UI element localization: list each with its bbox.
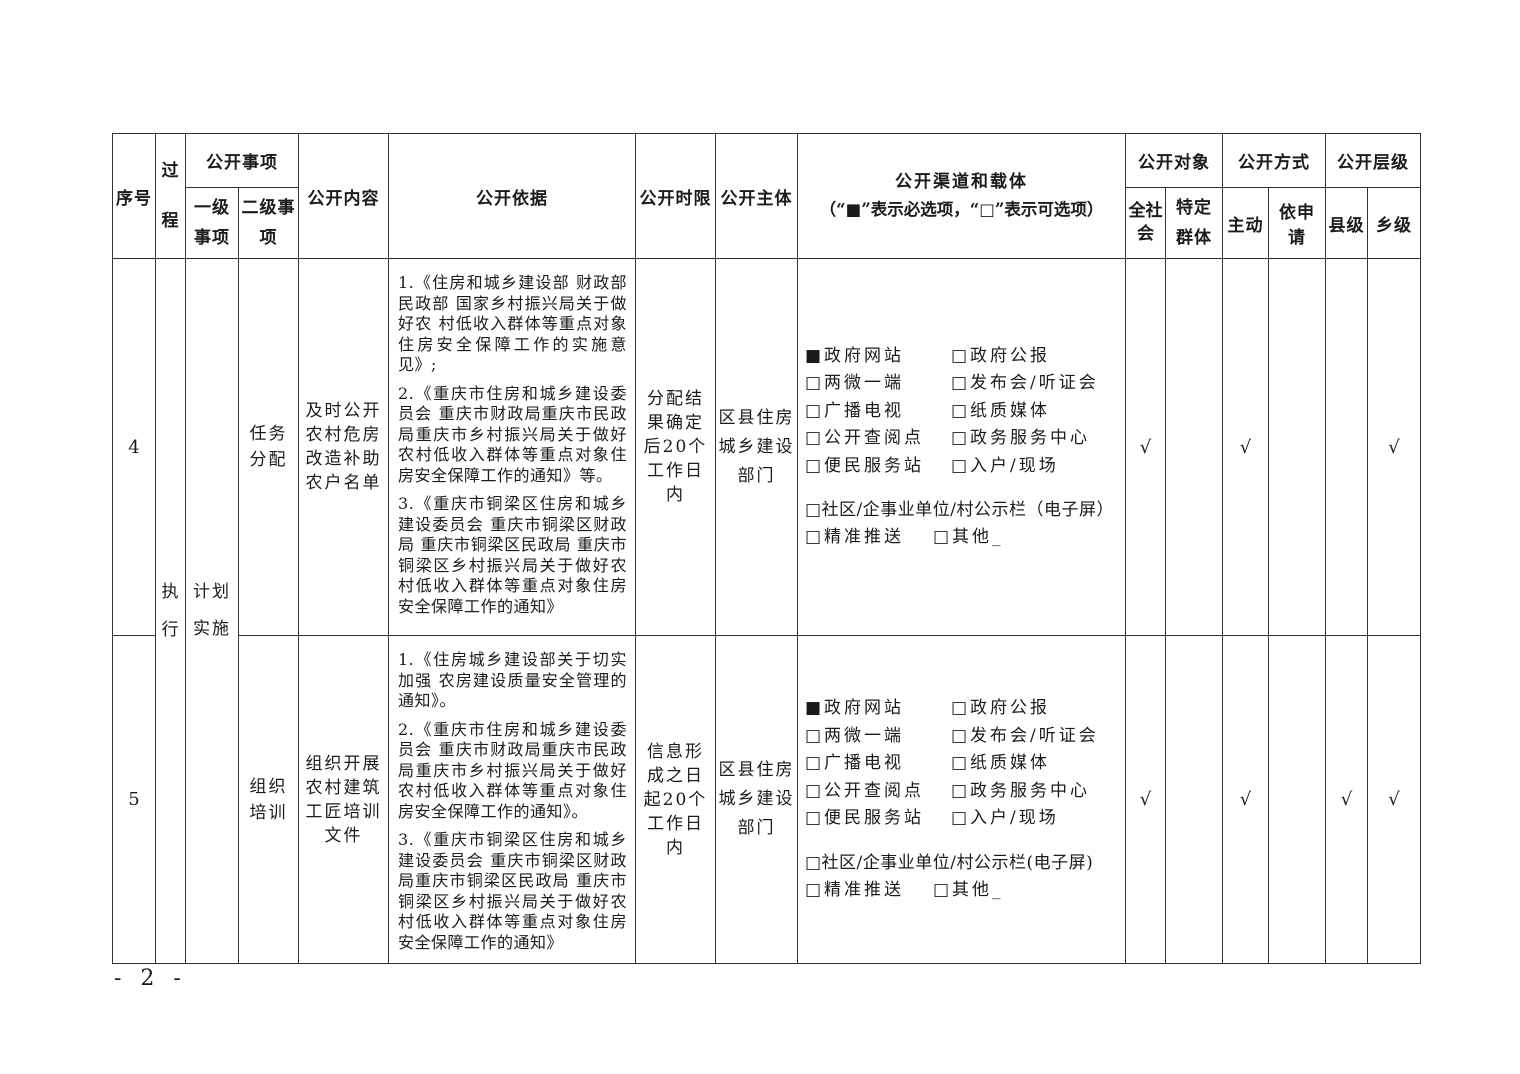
- checkbox-public-reading-point: □公开查阅点: [805, 425, 951, 453]
- row4-channels: ■政府网站 □两微一端 □广播电视 □公开查阅点 □便民服务站 □政府公报 □发…: [798, 259, 1126, 636]
- header-channels-title: 公开渠道和载体: [800, 169, 1123, 196]
- row4-time-limit: 分配结果确定后20个工作日内: [636, 259, 716, 636]
- row5-basis-item-1: 1.《住房城乡建设部关于切实加强 农房建设质量安全管理的通知》。: [398, 650, 627, 712]
- checkbox-two-micro-one-app: □两微一端: [805, 370, 951, 398]
- checkbox-door-to-door: □入户/现场: [951, 805, 1123, 833]
- checkbox-door-to-door: □入户/现场: [951, 453, 1123, 481]
- checkbox-public-reading-point: □公开查阅点: [805, 778, 951, 806]
- checkbox-gov-gazette: □政府公报: [951, 695, 1123, 723]
- document-page: { "footer": { "page_number": "- 2 -" }, …: [0, 0, 1520, 1074]
- row4-level2-item: 任务分配: [239, 259, 299, 636]
- header-subject: 公开主体: [716, 134, 798, 259]
- header-basis: 公开依据: [389, 134, 636, 259]
- row5-basis: 1.《住房城乡建设部关于切实加强 农房建设质量安全管理的通知》。 2.《重庆市住…: [389, 636, 636, 964]
- header-method: 公开方式: [1223, 134, 1326, 188]
- row5-channels: ■政府网站 □两微一端 □广播电视 □公开查阅点 □便民服务站 □政府公报 □发…: [798, 636, 1126, 964]
- header-process: 过程: [156, 134, 186, 259]
- header-level1-item: 一级事项: [186, 188, 239, 259]
- row4-mark-on-request: [1269, 259, 1326, 636]
- row4-mark-whole-society: √: [1126, 259, 1166, 636]
- header-proactive: 主动: [1223, 188, 1269, 259]
- row4-subject: 区县住房城乡建设部门: [716, 259, 798, 636]
- checkbox-service-center: □政务服务中心: [951, 425, 1123, 453]
- checkbox-precise-push: □精准推送: [805, 877, 933, 904]
- checkbox-convenience-station: □便民服务站: [805, 453, 951, 481]
- row4-basis-item-1: 1.《住房和城乡建设部 财政部 民政部 国家乡村振兴局关于做好农 村低收入群体等…: [398, 273, 627, 376]
- header-level2-item: 二级事项: [239, 188, 299, 259]
- header-county-level: 县级: [1326, 188, 1368, 259]
- row4-basis-item-3: 3.《重庆市铜梁区住房和城乡建设委员会 重庆市铜梁区财政局 重庆市铜梁区民政局 …: [398, 494, 627, 617]
- checkbox-service-center: □政务服务中心: [951, 778, 1123, 806]
- header-on-request: 依申请: [1269, 188, 1326, 259]
- checkbox-paper-media: □纸质媒体: [951, 398, 1123, 426]
- row4-content: 及时公开农村危房改造补助农户名单: [299, 259, 389, 636]
- checkbox-convenience-station: □便民服务站: [805, 805, 951, 833]
- checkbox-community-board: □社区/企事业单位/村公示栏(电子屏): [805, 850, 1123, 877]
- header-specific-group: 特定群体: [1166, 188, 1223, 259]
- checkbox-paper-media: □纸质媒体: [951, 750, 1123, 778]
- row4-seq: 4: [113, 259, 156, 636]
- header-content: 公开内容: [299, 134, 389, 259]
- row5-mark-county: √: [1326, 636, 1368, 964]
- header-level: 公开层级: [1326, 134, 1421, 188]
- checkbox-broadcast-tv: □广播电视: [805, 750, 951, 778]
- row4-basis: 1.《住房和城乡建设部 财政部 民政部 国家乡村振兴局关于做好农 村低收入群体等…: [389, 259, 636, 636]
- header-channels: 公开渠道和载体 （“■”表示必选项，“□”表示可选项）: [798, 134, 1126, 259]
- header-seq: 序号: [113, 134, 156, 259]
- row5-mark-proactive: √: [1223, 636, 1269, 964]
- header-township-level: 乡级: [1368, 188, 1421, 259]
- header-channels-legend: （“■”表示必选项，“□”表示可选项）: [800, 196, 1123, 223]
- row5-level2-item: 组织培训: [239, 636, 299, 964]
- checkbox-press-hearing: □发布会/听证会: [951, 723, 1123, 751]
- level1-item-cell: 计划实施: [186, 259, 239, 964]
- checkbox-gov-gazette: □政府公报: [951, 343, 1123, 371]
- row5-seq: 5: [113, 636, 156, 964]
- header-whole-society: 全社会: [1126, 188, 1166, 259]
- checkbox-broadcast-tv: □广播电视: [805, 398, 951, 426]
- checkbox-gov-website: ■政府网站: [805, 695, 951, 723]
- row5-mark-whole-society: √: [1126, 636, 1166, 964]
- checkbox-gov-website: ■政府网站: [805, 343, 951, 371]
- header-time-limit: 公开时限: [636, 134, 716, 259]
- checkbox-precise-push: □精准推送: [805, 524, 933, 551]
- header-disclosure-items: 公开事项: [186, 134, 299, 188]
- disclosure-items-table: 序号 过程 公开事项 公开内容 公开依据 公开时限 公开主体 公开渠道和载体 （…: [112, 133, 1421, 964]
- row5-subject: 区县住房城乡建设部门: [716, 636, 798, 964]
- row5-mark-specific-group: [1166, 636, 1223, 964]
- row4-mark-county: [1326, 259, 1368, 636]
- row5-mark-township: √: [1368, 636, 1421, 964]
- table-row-4: 4 执行 计划实施 任务分配 及时公开农村危房改造补助农户名单 1.《住房和城乡…: [113, 259, 1421, 636]
- row5-mark-on-request: [1269, 636, 1326, 964]
- row5-basis-item-3: 3.《重庆市铜梁区住房和城乡建设委员会 重庆市铜梁区财政局重庆市铜梁区民政局 重…: [398, 830, 627, 953]
- checkbox-other: □其他_: [933, 877, 1004, 904]
- row5-content: 组织开展农村建筑工匠培训文件: [299, 636, 389, 964]
- row5-time-limit: 信息形成之日起20个工作日内: [636, 636, 716, 964]
- checkbox-other: □其他_: [933, 524, 1004, 551]
- header-audience: 公开对象: [1126, 134, 1223, 188]
- table-row-5: 5 组织培训 组织开展农村建筑工匠培训文件 1.《住房城乡建设部关于切实加强 农…: [113, 636, 1421, 964]
- process-cell: 执行: [156, 259, 186, 964]
- checkbox-press-hearing: □发布会/听证会: [951, 370, 1123, 398]
- row5-basis-item-2: 2.《重庆市住房和城乡建设委员会 重庆市财政局重庆市民政局重庆市乡村振兴局关于做…: [398, 720, 627, 823]
- page-number: - 2 -: [114, 966, 187, 991]
- row4-mark-proactive: √: [1223, 259, 1269, 636]
- row4-basis-item-2: 2.《重庆市住房和城乡建设委员会 重庆市财政局重庆市民政局重庆市乡村振兴局关于做…: [398, 384, 627, 487]
- checkbox-community-board: □社区/企事业单位/村公示栏（电子屏）: [805, 497, 1123, 524]
- checkbox-two-micro-one-app: □两微一端: [805, 723, 951, 751]
- row4-mark-specific-group: [1166, 259, 1223, 636]
- row4-mark-township: √: [1368, 259, 1421, 636]
